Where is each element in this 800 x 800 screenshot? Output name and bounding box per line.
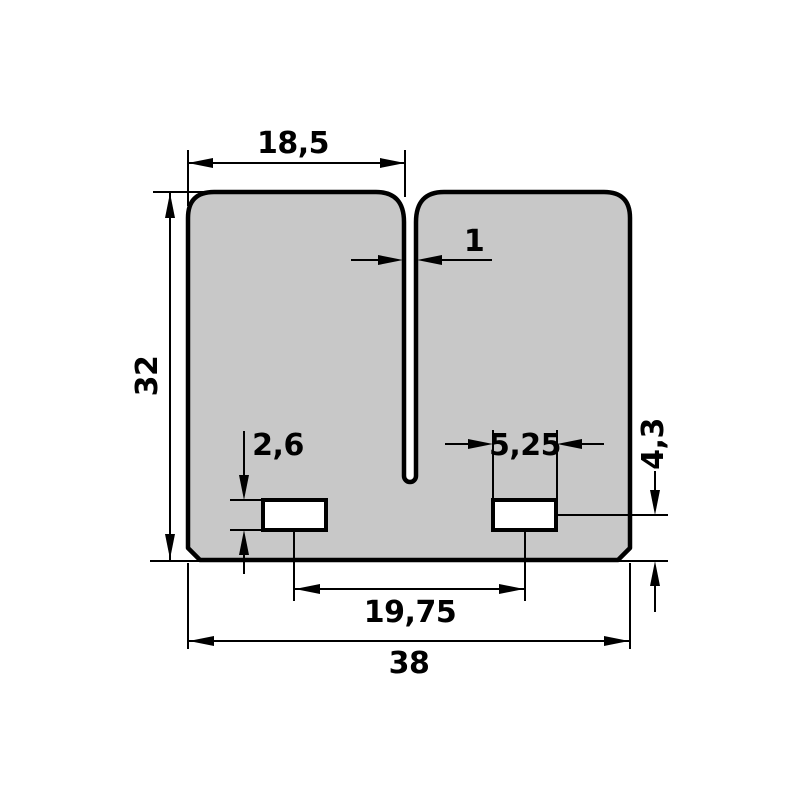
drawing-canvas: 18,5 1 32 — [0, 0, 800, 800]
arrowhead-right-icon — [604, 636, 629, 646]
reed-petal-outline — [188, 192, 630, 560]
dim-label-petal-width: 18,5 — [257, 126, 329, 161]
reed-petal-part — [188, 192, 630, 560]
arrowhead-right-icon — [499, 584, 524, 594]
dim-label-window-spacing: 19,75 — [364, 595, 456, 630]
dim-label-overall-width: 38 — [389, 646, 430, 681]
dim-label-window-center-to-bottom: 4,3 — [636, 418, 671, 470]
arrowhead-right-icon — [380, 158, 405, 168]
technical-drawing: 18,5 1 32 — [0, 0, 800, 800]
arrowhead-down-icon — [165, 534, 175, 559]
arrowhead-down-icon — [650, 490, 660, 515]
dim-label-overall-height: 32 — [130, 356, 165, 397]
left-window-hole — [263, 500, 326, 530]
arrowhead-left-icon — [188, 158, 213, 168]
arrowhead-up-icon — [650, 561, 660, 586]
right-window-hole — [493, 500, 556, 530]
arrowhead-left-icon — [189, 636, 214, 646]
dim-label-window-height: 2,6 — [252, 428, 304, 463]
dim-label-window-width: 5,25 — [489, 428, 561, 463]
arrowhead-up-icon — [165, 193, 175, 218]
arrowhead-left-icon — [295, 584, 320, 594]
dim-label-slot-width: 1 — [464, 224, 484, 259]
